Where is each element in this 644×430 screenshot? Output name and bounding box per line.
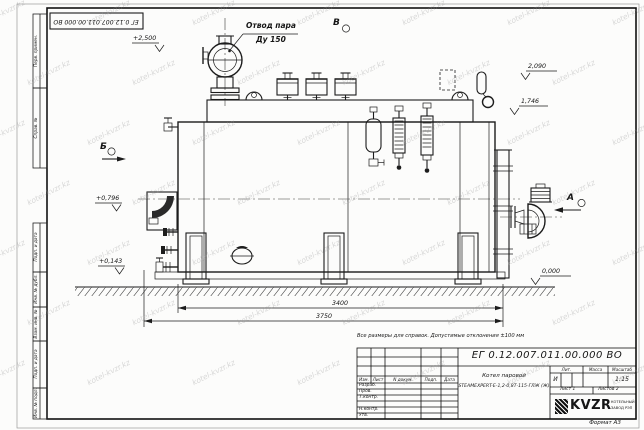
row-tkontr: Т.контр. — [359, 396, 378, 400]
lit-value: И — [553, 377, 558, 383]
row-razrab: Разраб. — [359, 384, 376, 388]
kvzr-logo-text: KVZR — [570, 399, 612, 412]
col-podp: Подп. — [425, 378, 438, 382]
cable-eyelet — [477, 72, 494, 108]
top-stamp-number: ЕГ 0.12.007.011.00.000 ВО — [53, 18, 138, 24]
left-top-valve — [164, 118, 178, 131]
margin-label-vzam-inv: Взам. инв. № — [35, 309, 39, 338]
boiler-shell — [155, 100, 505, 279]
row-utv: Утв. — [359, 414, 368, 418]
scale-header: Масштаб — [612, 368, 632, 372]
row-prov: Пров. — [359, 390, 372, 394]
lifting-lugs — [246, 92, 468, 100]
ground-hatch — [75, 287, 555, 296]
view-label-b: Б — [100, 143, 107, 152]
scale-value: 1:15 — [615, 377, 629, 383]
level-0000: 0,000 — [542, 269, 560, 275]
drawing-linework — [0, 0, 644, 430]
drawing-sheet: kotel-kvzr.kzkotel-kvzr.kzkotel-kvzr.kzk… — [0, 0, 644, 430]
title-doc-number: ЕГ 0.12.007.011.00.000 ВО — [472, 351, 622, 361]
hidden-component-outline — [440, 70, 455, 90]
right-flanged-column — [493, 150, 513, 278]
level-plus-0143: +0,143 — [99, 259, 122, 265]
mass-header: Масса — [589, 368, 602, 372]
margin-label-inv-podl: Инв. № подл. — [35, 388, 39, 418]
sheets-label: Листов 2 — [598, 388, 619, 392]
product-name-line1: Котел паровой — [482, 374, 526, 380]
level-plus-0796: +0,796 — [96, 196, 119, 202]
dim-3750: 3750 — [316, 314, 332, 320]
steam-outlet-callout-line2: Ду 150 — [256, 36, 286, 44]
format-label: Формат А3 — [589, 421, 621, 427]
safety-valves — [277, 73, 357, 100]
margin-label-sprav-no: Справ. № — [35, 118, 39, 139]
left-wall-fittings — [156, 228, 178, 272]
manhole — [230, 246, 254, 264]
lit-header: Лит. — [562, 368, 572, 372]
level-2090: 2,090 — [528, 64, 546, 70]
view-label-v: В — [333, 19, 340, 28]
view-arrows — [102, 25, 585, 213]
dim-3400: 3400 — [332, 301, 348, 307]
margin-label-podp-data-1: Подп. и дата — [35, 232, 39, 261]
elevation-marks — [95, 43, 571, 285]
kvzr-logo-mark — [555, 399, 568, 414]
level-plus-2500: +2,500 — [133, 36, 156, 42]
col-dokum: N докум. — [393, 378, 412, 382]
margin-label-inv-dubl: Инв. № дубл. — [35, 274, 39, 303]
burner-elbow — [147, 192, 177, 230]
col-izm: Изм. — [359, 378, 369, 382]
level-1746: 1,746 — [521, 99, 539, 105]
margin-label-perv-primen: Перв. примен. — [35, 35, 39, 67]
level-gauges — [366, 103, 433, 173]
view-label-a: А — [567, 194, 574, 203]
support-legs — [183, 233, 481, 284]
col-data: Дата — [444, 378, 455, 382]
product-name-line2: STEAMEXPERT-Е-1,2-0,8Т-115-ГЛЖ (Ж) — [458, 385, 549, 390]
sheet-label: Лист 1 — [560, 388, 575, 392]
steam-outlet-callout-line1: Отвод пара — [246, 22, 296, 30]
reference-note: Все размеры для справок. Допустимые откл… — [357, 334, 524, 339]
col-list: Лист — [373, 378, 384, 382]
org-name-line2: ЗАВОД РЭП — [611, 407, 632, 411]
row-nkontr: Н.контр. — [359, 408, 379, 412]
margin-label-podp-data-2: Подп. и дата — [35, 349, 39, 378]
org-name-line1: КОТЕЛЬНЫЙ — [611, 401, 635, 405]
